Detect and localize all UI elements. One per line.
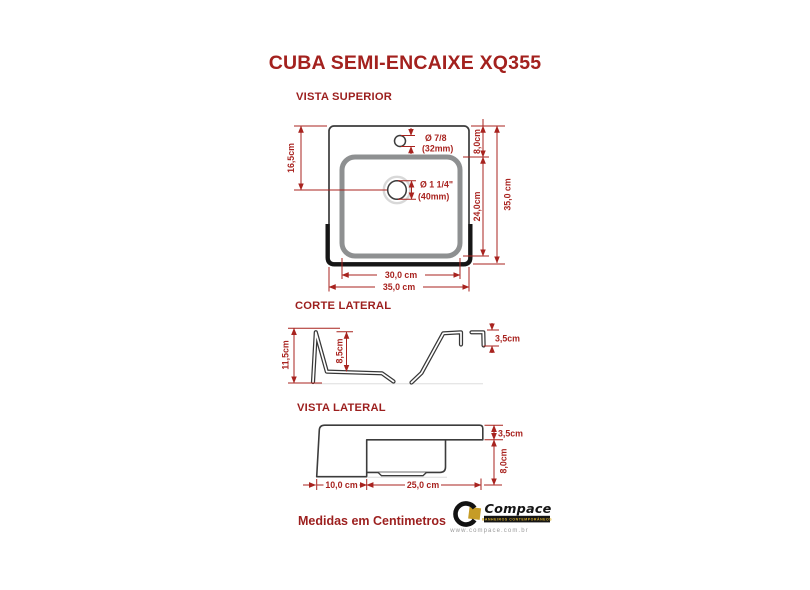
dim-section-rim-height: 3,5cm	[484, 323, 521, 353]
vista-lateral-label: VISTA LATERAL	[297, 402, 386, 414]
svg-text:16,5cm: 16,5cm	[286, 143, 296, 173]
svg-text:25,0 cm: 25,0 cm	[407, 480, 439, 490]
basin-inner-bowl	[342, 157, 460, 256]
dim-side-rim-height: 3,5cm	[485, 425, 524, 440]
svg-text:35,0 cm: 35,0 cm	[383, 282, 415, 292]
side-drain-outline	[378, 472, 427, 475]
svg-text:Ø 7/8: Ø 7/8	[425, 133, 447, 143]
logo-tagline-text: BANHEIROS CONTEMPORÂNEOS	[482, 517, 552, 522]
svg-text:3,5cm: 3,5cm	[495, 334, 520, 344]
page-title: CUBA SEMI-ENCAIXE XQ355	[0, 52, 810, 75]
faucet-hole-callout: Ø 7/8 (32mm)	[401, 128, 453, 154]
svg-text:24,0cm: 24,0cm	[472, 191, 482, 221]
dim-section-total-height: 11,5cm	[281, 328, 341, 383]
vista-superior-drawing: 16,5cm 8,0cm 24,0cm 35,0 cm 30,0 cm	[280, 108, 540, 308]
svg-text:35,0 cm: 35,0 cm	[503, 178, 513, 210]
drain-hole	[388, 181, 407, 200]
svg-text:3,5cm: 3,5cm	[498, 429, 523, 439]
logo-url-text: www.compace.com.br	[449, 528, 529, 534]
svg-text:Ø 1 1/4": Ø 1 1/4"	[420, 180, 453, 190]
svg-text:10,0 cm: 10,0 cm	[325, 480, 357, 490]
logo-gold-square	[468, 507, 481, 520]
units-note: Medidas em Centimetros	[298, 514, 446, 528]
vista-lateral-drawing: 3,5cm 8,0cm 10,0 cm 25,0 cm	[290, 415, 540, 500]
svg-text:30,0 cm: 30,0 cm	[385, 270, 417, 280]
vista-superior-label: VISTA SUPERIOR	[296, 91, 392, 103]
svg-text:8,0cm: 8,0cm	[499, 448, 509, 473]
section-rim-piece	[472, 332, 484, 345]
svg-text:8,0cm: 8,0cm	[472, 129, 482, 154]
dim-side-bottom-lengths: 10,0 cm 25,0 cm	[303, 479, 481, 491]
svg-text:(40mm): (40mm)	[418, 192, 449, 202]
compace-logo: Compace BANHEIROS CONTEMPORÂNEOS www.com…	[440, 494, 560, 538]
logo-brand-text: Compace	[485, 502, 552, 517]
side-profile	[317, 425, 483, 477]
svg-text:11,5cm: 11,5cm	[281, 340, 291, 370]
section-left-wall	[313, 332, 394, 382]
svg-text:8,5cm: 8,5cm	[335, 338, 345, 363]
corte-lateral-label: CORTE LATERAL	[295, 300, 391, 312]
product-dimension-sheet: CUBA SEMI-ENCAIXE XQ355 VISTA SUPERIOR 1…	[0, 0, 810, 590]
corte-lateral-drawing: 11,5cm 8,5cm 3,5cm	[280, 315, 540, 400]
faucet-hole	[395, 136, 406, 147]
svg-text:(32mm): (32mm)	[422, 144, 453, 154]
dim-side-bowl-height: 8,0cm	[484, 440, 509, 485]
dim-section-inner-depth: 8,5cm	[335, 332, 354, 372]
side-body-outline	[317, 425, 483, 477]
side-bowl-outline	[367, 440, 446, 473]
